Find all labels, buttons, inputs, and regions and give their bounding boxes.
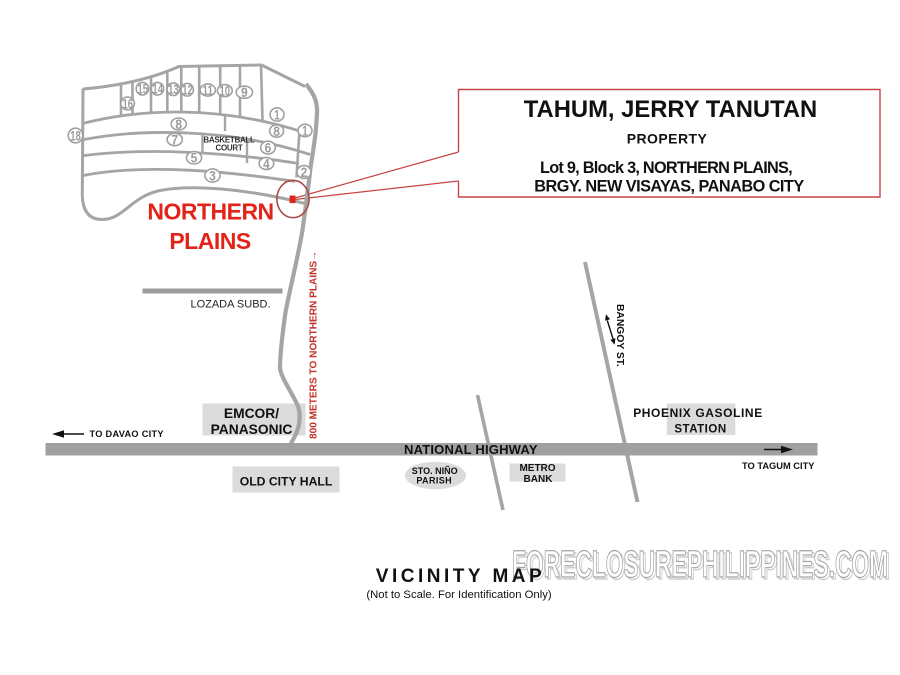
svg-text:METRO: METRO: [519, 463, 555, 474]
svg-text:NATIONAL HIGHWAY: NATIONAL HIGHWAY: [404, 442, 538, 457]
svg-text:8: 8: [175, 117, 182, 132]
svg-text:PLAINS: PLAINS: [169, 228, 251, 254]
svg-text:TAHUM, JERRY TANUTAN: TAHUM, JERRY TANUTAN: [524, 96, 818, 123]
svg-text:4: 4: [263, 156, 270, 171]
svg-text:TO TAGUM CITY: TO TAGUM CITY: [742, 461, 815, 471]
svg-text:NORTHERN: NORTHERN: [147, 198, 273, 224]
svg-text:6: 6: [265, 141, 272, 156]
svg-text:LOZADA SUBD.: LOZADA SUBD.: [190, 299, 270, 311]
svg-text:PHOENIX GASOLINE: PHOENIX GASOLINE: [633, 406, 763, 420]
svg-text:18: 18: [70, 128, 81, 143]
svg-text:OLD CITY HALL: OLD CITY HALL: [240, 475, 333, 489]
svg-text:Lot 9, Block 3, NORTHERN PLAIN: Lot 9, Block 3, NORTHERN PLAINS,: [540, 159, 792, 177]
svg-text:PANASONIC: PANASONIC: [211, 422, 293, 437]
svg-text:STATION: STATION: [674, 424, 726, 436]
svg-text:2: 2: [301, 165, 308, 180]
svg-text:14: 14: [152, 82, 163, 97]
svg-text:7: 7: [171, 132, 178, 147]
svg-text:800 METERS TO NORTHERN PLAINS→: 800 METERS TO NORTHERN PLAINS→: [309, 251, 320, 439]
svg-text:3: 3: [209, 168, 216, 183]
svg-text:TO DAVAO CITY: TO DAVAO CITY: [90, 429, 164, 439]
svg-text:13: 13: [168, 82, 179, 97]
svg-text:12: 12: [182, 83, 193, 98]
svg-text:8: 8: [273, 124, 280, 139]
svg-text:VICINITY MAP: VICINITY MAP: [376, 566, 545, 587]
svg-text:BRGY. NEW VISAYAS, PANABO CITY: BRGY. NEW VISAYAS, PANABO CITY: [534, 177, 804, 195]
svg-text:PARISH: PARISH: [416, 475, 452, 485]
svg-text:5: 5: [191, 151, 198, 166]
svg-text:9: 9: [241, 85, 248, 100]
svg-text:1: 1: [302, 123, 308, 138]
svg-text:16: 16: [123, 96, 134, 111]
svg-text:EMCOR/: EMCOR/: [224, 406, 279, 421]
svg-text:11: 11: [203, 83, 214, 98]
svg-text:(Not to Scale. For Identificat: (Not to Scale. For Identification Only): [366, 589, 551, 601]
svg-text:COURT: COURT: [216, 143, 243, 152]
svg-text:PROPERTY: PROPERTY: [627, 131, 708, 147]
svg-text:15: 15: [138, 82, 149, 97]
svg-text:10: 10: [220, 84, 231, 99]
svg-text:1: 1: [274, 107, 280, 122]
svg-text:FORECLOSUREPHILIPPINES.COM: FORECLOSUREPHILIPPINES.COM: [512, 543, 888, 585]
svg-text:BANGOY ST.: BANGOY ST.: [614, 304, 625, 367]
svg-text:BANK: BANK: [524, 474, 554, 485]
